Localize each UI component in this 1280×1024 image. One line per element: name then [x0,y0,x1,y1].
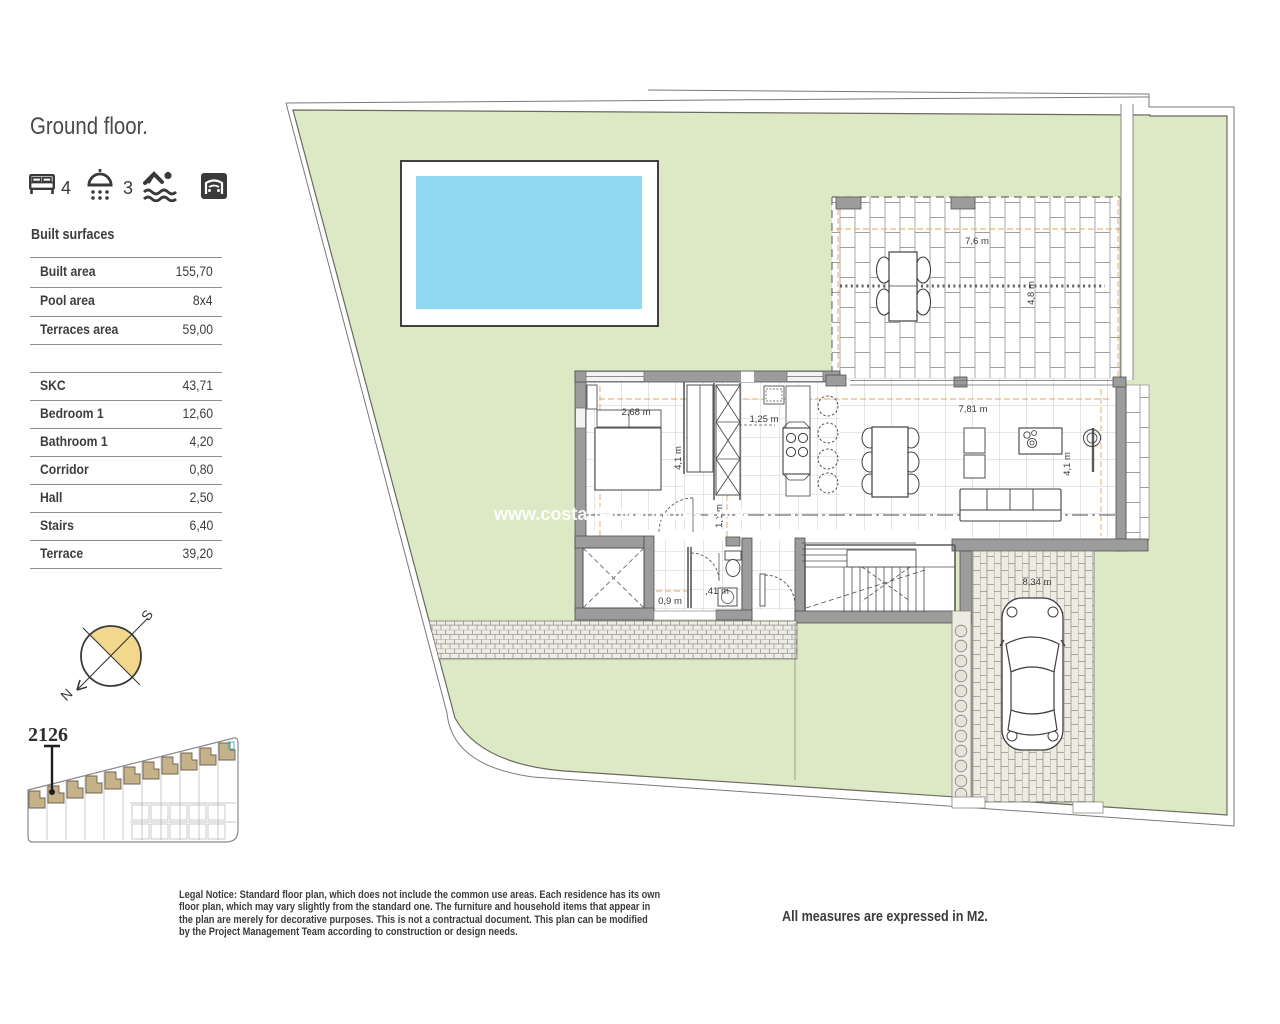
svg-text:www.costablancahomes.com: www.costablancahomes.com [493,504,744,524]
svg-text:4,1 m: 4,1 m [1062,452,1073,476]
svg-text:2,68 m: 2,68 m [621,407,650,418]
svg-text:4,1 m: 4,1 m [673,446,684,470]
svg-text:N: N [57,685,75,703]
svg-text:1,25 m: 1,25 m [749,414,778,425]
svg-text:8,34 m: 8,34 m [1022,577,1051,588]
svg-text:7,81 m: 7,81 m [958,404,987,415]
svg-text:7,6 m: 7,6 m [965,236,989,247]
svg-text:,41 m: ,41 m [705,586,729,597]
svg-text:S: S [138,607,156,624]
svg-text:4,8 m: 4,8 m [1026,281,1037,305]
svg-text:0,9 m: 0,9 m [658,596,682,607]
